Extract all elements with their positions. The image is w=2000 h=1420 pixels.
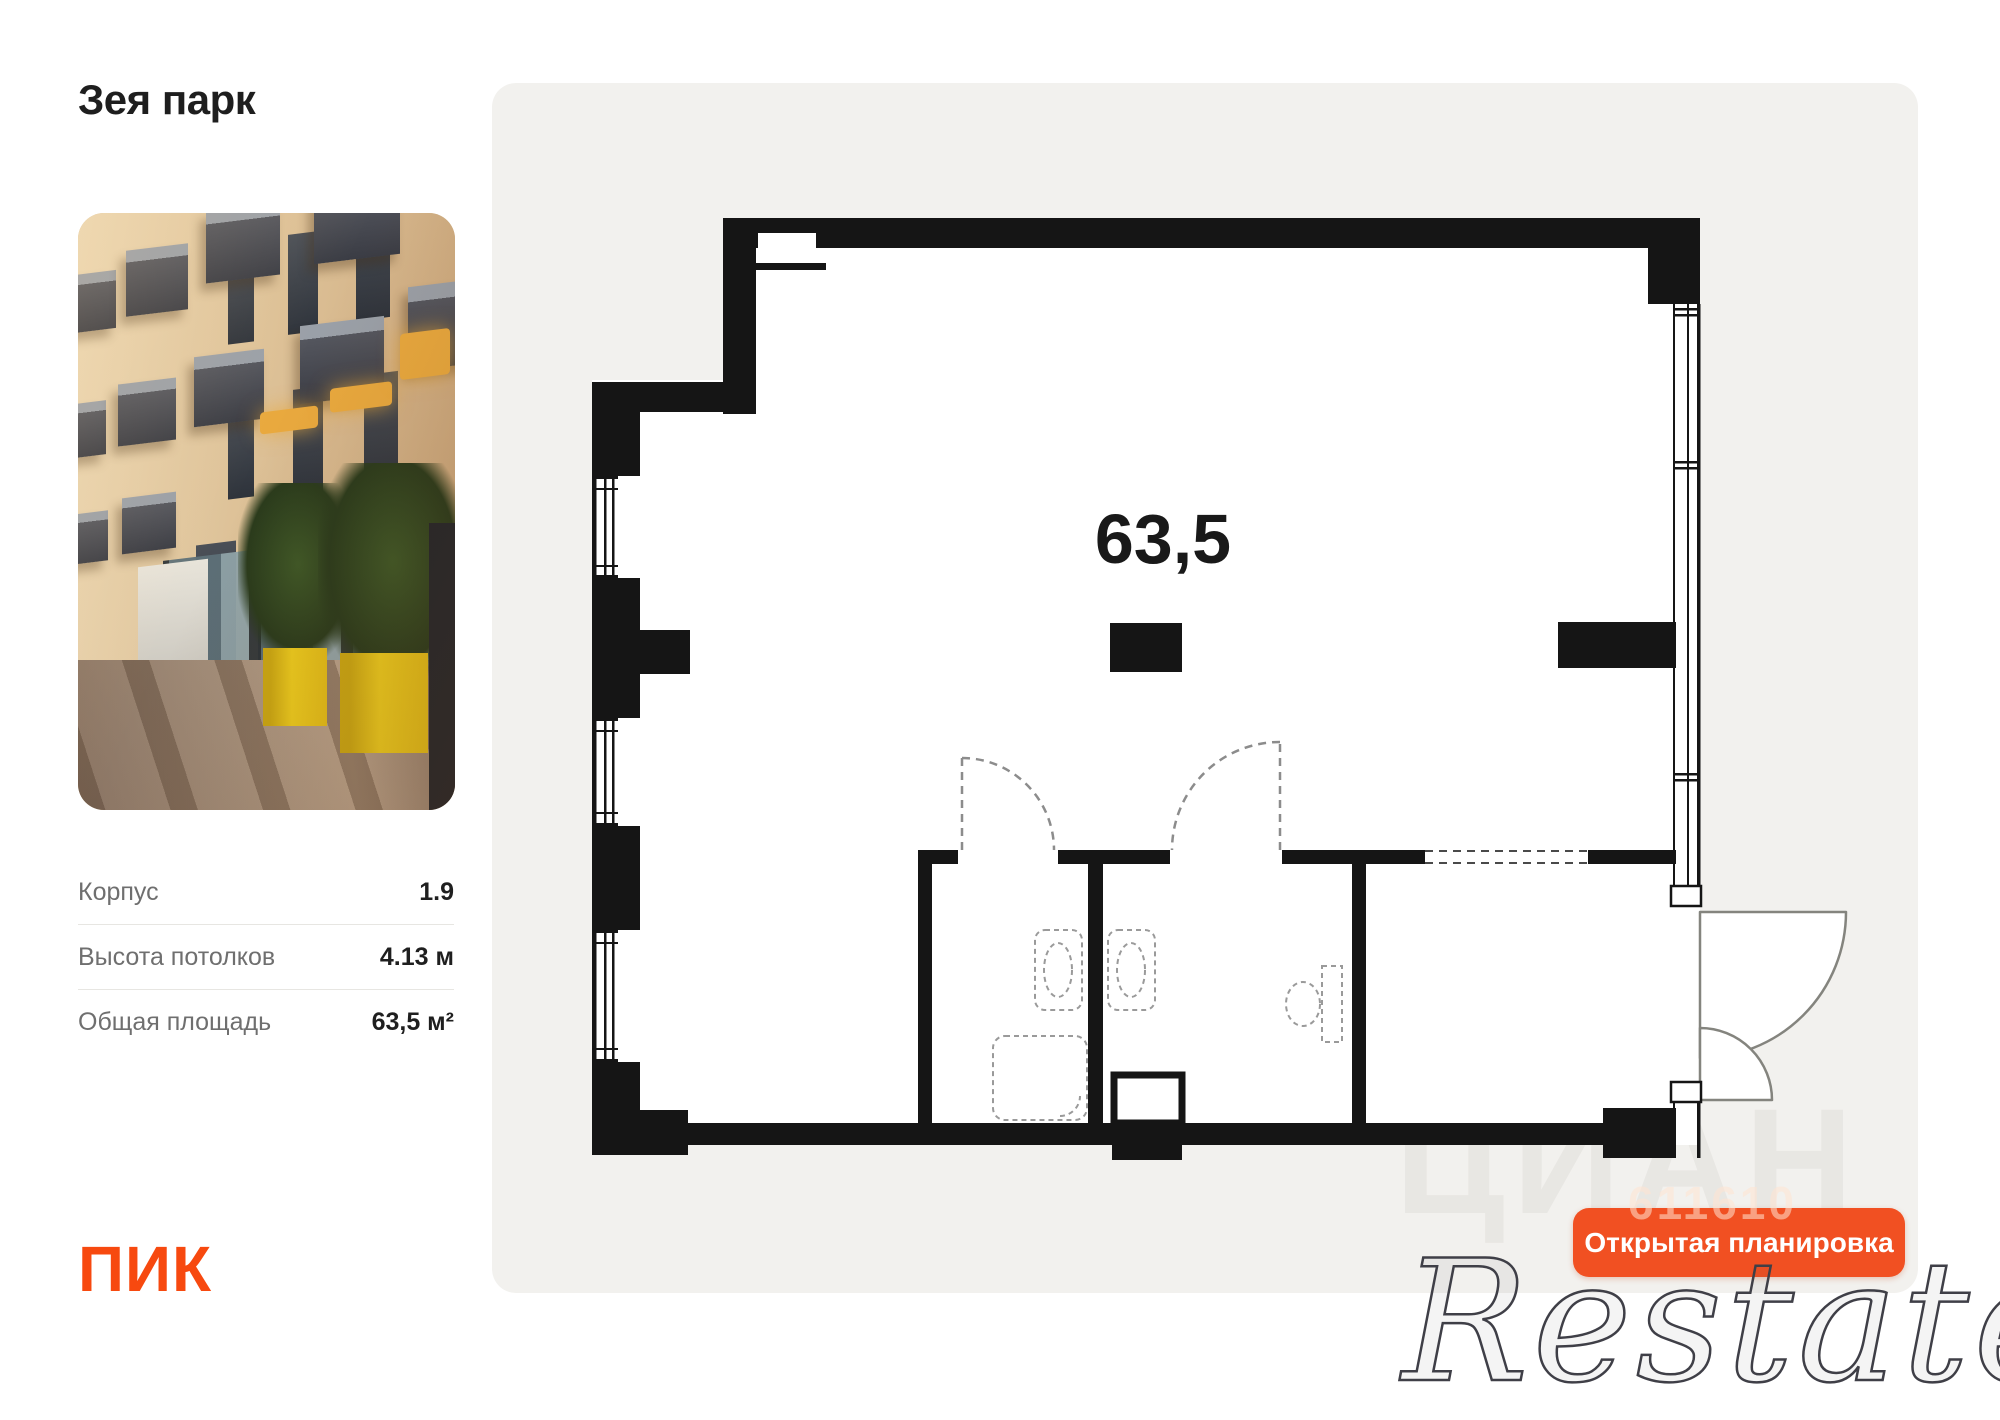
page-title: Зея парк bbox=[78, 76, 458, 124]
spec-value: 1.9 bbox=[419, 878, 454, 907]
spec-row-area: Общая площадь 63,5 м² bbox=[78, 990, 454, 1054]
listing-code-watermark: 611610 bbox=[1628, 1176, 1797, 1230]
spec-row-ceiling: Высота потолков 4.13 м bbox=[78, 925, 454, 990]
spec-row-building: Корпус 1.9 bbox=[78, 860, 454, 925]
spec-list: Корпус 1.9 Высота потолков 4.13 м Общая … bbox=[78, 860, 454, 1054]
restate-watermark: Restate bbox=[1402, 1238, 2000, 1406]
warm-light-overlay bbox=[78, 213, 455, 810]
spec-value: 63,5 м² bbox=[372, 1008, 454, 1037]
developer-logo: ПИК bbox=[78, 1232, 212, 1306]
spec-label: Высота потолков bbox=[78, 943, 275, 972]
spec-value: 4.13 м bbox=[380, 943, 454, 972]
project-photo bbox=[78, 213, 455, 810]
spec-label: Корпус bbox=[78, 878, 159, 907]
spec-label: Общая площадь bbox=[78, 1008, 271, 1037]
